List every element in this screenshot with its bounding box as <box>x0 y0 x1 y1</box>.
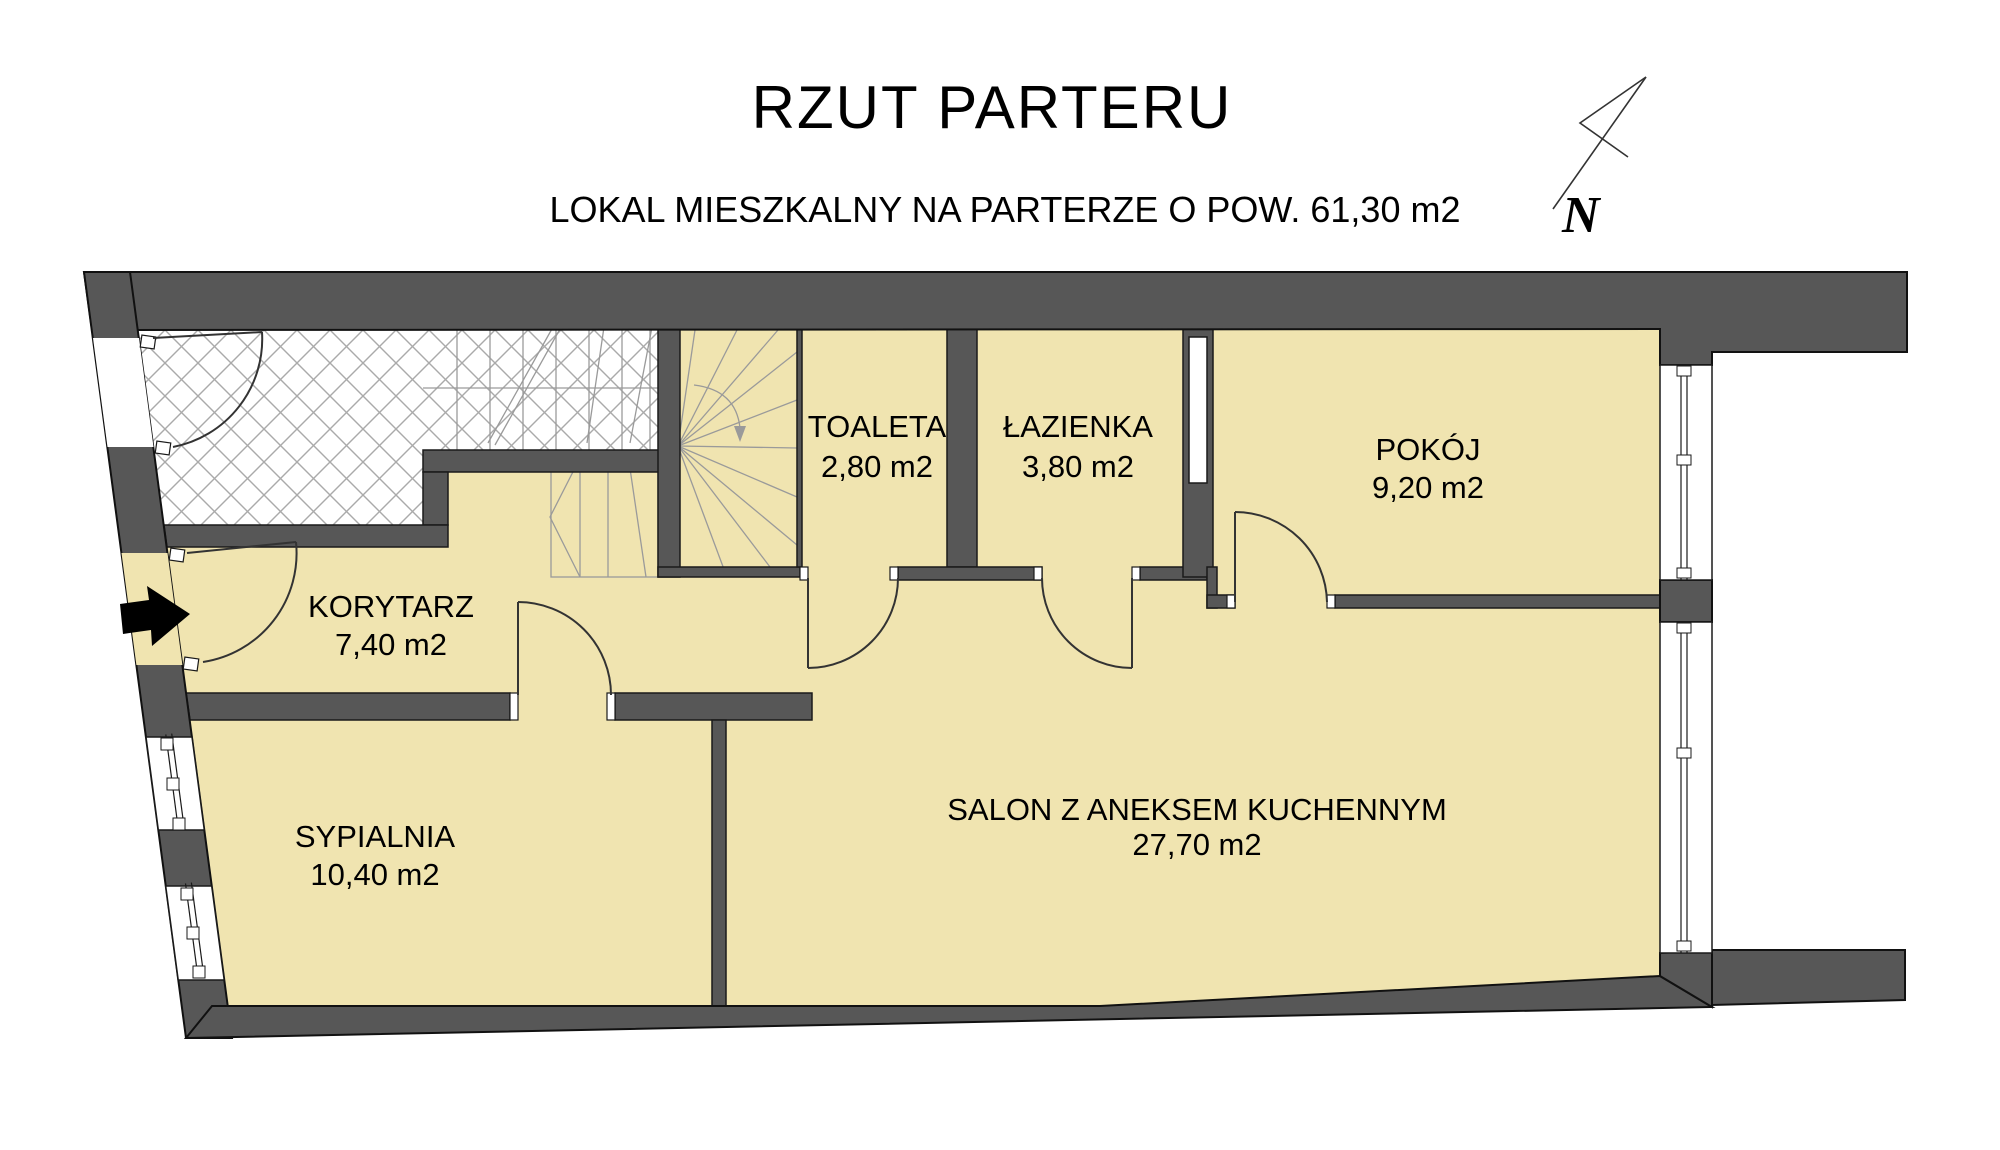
window-pokoj <box>1660 365 1712 580</box>
wall-korytarz-bottom-left <box>186 693 510 720</box>
room-label-lazienka: ŁAZIENKA <box>1003 409 1153 444</box>
wall-hall-bottom-right <box>423 450 678 472</box>
room-area-pokoj: 9,20 m2 <box>1372 470 1484 505</box>
room-label-salon: SALON Z ANEKSEM KUCHENNYM <box>947 792 1447 827</box>
wall-salon-north-a <box>898 567 1042 580</box>
room-area-lazienka: 3,80 m2 <box>1022 449 1134 484</box>
room-label-korytarz: KORYTARZ <box>308 589 474 624</box>
wall-sypialnia-salon <box>712 720 726 1006</box>
north-label: N <box>1561 187 1602 244</box>
wall-right-pier <box>1660 580 1712 622</box>
wall-stair-right <box>658 329 680 577</box>
wall-hall-step <box>423 472 448 525</box>
wall-bottom-right-stub <box>1712 950 1905 1005</box>
room-area-toaleta: 2,80 m2 <box>821 449 933 484</box>
room-label-toaleta: TOALETA <box>808 409 947 444</box>
room-label-pokoj: POKÓJ <box>1375 432 1480 467</box>
duct-shaft <box>1189 337 1207 483</box>
floor-plan-drawing: N RZUT PARTERU LOKAL MIESZKALNY NA PARTE… <box>0 0 2000 1150</box>
page-title: RZUT PARTERU <box>752 74 1233 141</box>
window-salon <box>1660 622 1712 953</box>
wall-toaleta-lazienka <box>947 329 977 567</box>
right-windows <box>1660 365 1712 953</box>
room-area-korytarz: 7,40 m2 <box>335 627 447 662</box>
wall-toaleta-partition <box>797 329 802 567</box>
wall-hall-bottom-left <box>164 525 448 547</box>
wall-under-stair <box>658 567 800 577</box>
room-label-sypialnia: SYPIALNIA <box>295 819 456 854</box>
room-area-salon: 27,70 m2 <box>1132 827 1261 862</box>
wall-korytarz-bottom-right <box>615 693 812 720</box>
room-area-sypialnia: 10,40 m2 <box>310 857 439 892</box>
page-subtitle: LOKAL MIESZKALNY NA PARTERZE O POW. 61,3… <box>550 189 1461 230</box>
wall-pokoj-salon <box>1335 595 1660 608</box>
floor-plan-page: N RZUT PARTERU LOKAL MIESZKALNY NA PARTE… <box>0 0 2000 1150</box>
